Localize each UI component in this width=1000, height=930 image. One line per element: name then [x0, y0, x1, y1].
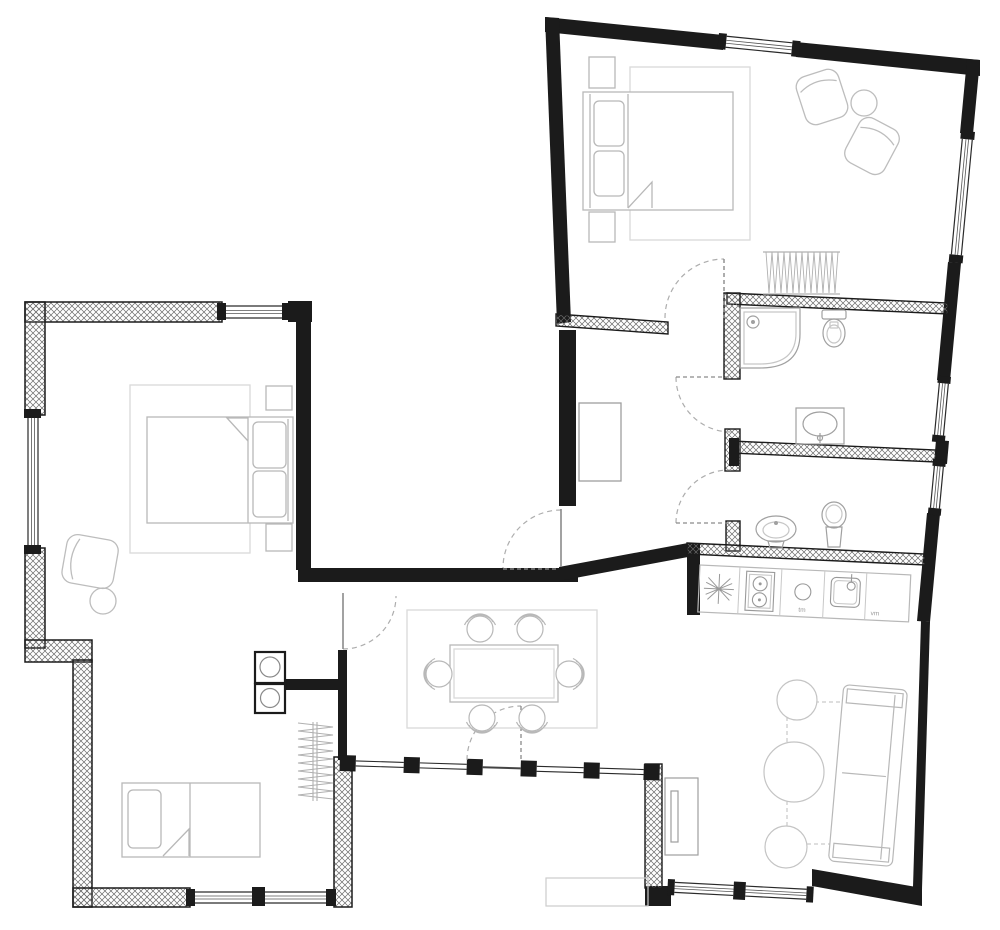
- bathroom-2-door: [676, 470, 731, 523]
- mullion-post: [466, 759, 482, 775]
- hall-cabinet: [579, 403, 621, 481]
- round-table: [765, 826, 807, 868]
- floor-plan-canvas: tm vm: [0, 0, 1000, 930]
- wall-bedroom-left-south: [298, 568, 578, 582]
- wall-kids-room-south: [73, 888, 190, 907]
- corner-shower: [740, 308, 800, 368]
- master-bedroom-furniture: [583, 57, 903, 294]
- sofa: [828, 685, 907, 867]
- round-side-table: [90, 588, 116, 614]
- wall-corner-bedroom-left-ne: [288, 301, 312, 322]
- wall-bedroom-left-west-lower: [25, 548, 45, 648]
- double-bed: [583, 92, 733, 210]
- mullion-post: [340, 755, 356, 771]
- appliance-label-vm: vm: [870, 610, 879, 617]
- washer-dryer-stack: [255, 652, 285, 713]
- master-bedroom-door: [665, 259, 724, 318]
- toilet: [822, 502, 846, 547]
- wall-bedroom-left-north: [25, 302, 222, 322]
- chair: [467, 705, 498, 733]
- window-east-2: [932, 376, 951, 443]
- cooktop-two-burner: [745, 571, 775, 611]
- tv-screen: [671, 791, 678, 842]
- window-east-3: [928, 459, 946, 516]
- clothes-hangers: [766, 252, 838, 293]
- wall-kids-room-east-upper: [338, 650, 347, 760]
- wall-west-step: [25, 640, 92, 662]
- wall-east-segment-c: [917, 513, 940, 622]
- wall-living-west: [645, 764, 662, 888]
- chair: [515, 614, 546, 642]
- round-table: [764, 742, 824, 802]
- window-east-1: [949, 131, 975, 264]
- wall-bathroom1-north: [727, 293, 948, 314]
- kitchen-fixtures: tm vm: [698, 565, 911, 622]
- wardrobe-hanging-rail: [298, 722, 333, 801]
- appliance-label-tm: tm: [798, 607, 806, 614]
- wall-hall-kitchen-sloped: [559, 543, 688, 581]
- dining-furniture: [407, 610, 597, 733]
- tv-cabinet: [665, 778, 698, 855]
- window-bedroom-left-north: [217, 303, 291, 320]
- window-living-south: [667, 878, 814, 904]
- entrance-door-leaf-closed: [483, 767, 521, 768]
- wall-kids-room-west: [73, 660, 92, 907]
- floor-plan-drawing: tm vm: [0, 0, 1000, 930]
- wall-living-east: [913, 621, 930, 889]
- round-basin: [794, 584, 811, 601]
- chair: [424, 659, 452, 690]
- wall-kitchen-back: [687, 543, 925, 565]
- square-sink: [830, 573, 861, 607]
- wall-corner-living-sw: [645, 886, 671, 906]
- dining-table: [450, 645, 558, 702]
- nightstand: [589, 212, 615, 242]
- living-room-furniture: [546, 680, 908, 906]
- bathroom-1-door: [676, 377, 731, 432]
- wall-washer-partition: [284, 679, 338, 690]
- wall-divider-end-cap: [729, 438, 739, 466]
- wall-living-south: [812, 869, 922, 906]
- window-master-north: [717, 33, 800, 57]
- wall-master-west: [545, 17, 571, 324]
- wall-east-segment-b: [937, 262, 961, 381]
- armchair: [793, 66, 850, 127]
- washbasin: [796, 408, 844, 444]
- single-bed: [122, 783, 260, 857]
- wall-bathroom-west-upper: [724, 293, 740, 379]
- round-table: [777, 680, 817, 720]
- clothes-hangers: [298, 723, 333, 799]
- wall-hall-west: [559, 330, 576, 506]
- wall-bedroom-left-east: [296, 322, 311, 570]
- wall-master-north-right: [796, 42, 980, 76]
- mullion-post: [403, 757, 419, 773]
- nightstand: [266, 386, 292, 410]
- window-dining-glazed-wall: [340, 755, 660, 780]
- armchair: [60, 533, 120, 590]
- chair: [465, 614, 496, 642]
- bathroom-1-fixtures: [740, 308, 846, 444]
- bathroom-2-fixtures: [756, 502, 846, 548]
- mullion-post: [583, 762, 599, 778]
- round-side-table: [851, 90, 877, 116]
- wardrobe-hanging-rail: [763, 252, 840, 294]
- nightstand: [589, 57, 615, 88]
- kids-room-door: [343, 593, 396, 649]
- terrace-step: [546, 878, 648, 906]
- bidet: [756, 516, 796, 548]
- nightstand: [266, 524, 292, 551]
- armchair: [841, 114, 903, 179]
- wall-master-north-left: [545, 17, 723, 50]
- mullion-post: [520, 760, 536, 776]
- hall-door: [503, 509, 561, 569]
- toilet: [822, 310, 846, 347]
- burst-symbol: [703, 573, 734, 604]
- bedroom-left-furniture: [60, 385, 293, 614]
- chair: [556, 659, 584, 690]
- window-bedroom-left-west: [24, 409, 41, 554]
- mullion-post: [643, 764, 659, 780]
- double-bed: [147, 417, 293, 523]
- wall-kids-room-east-lower: [334, 757, 352, 907]
- window-kids-room-south: [186, 887, 336, 906]
- wall-bedroom-left-west-upper: [25, 302, 45, 415]
